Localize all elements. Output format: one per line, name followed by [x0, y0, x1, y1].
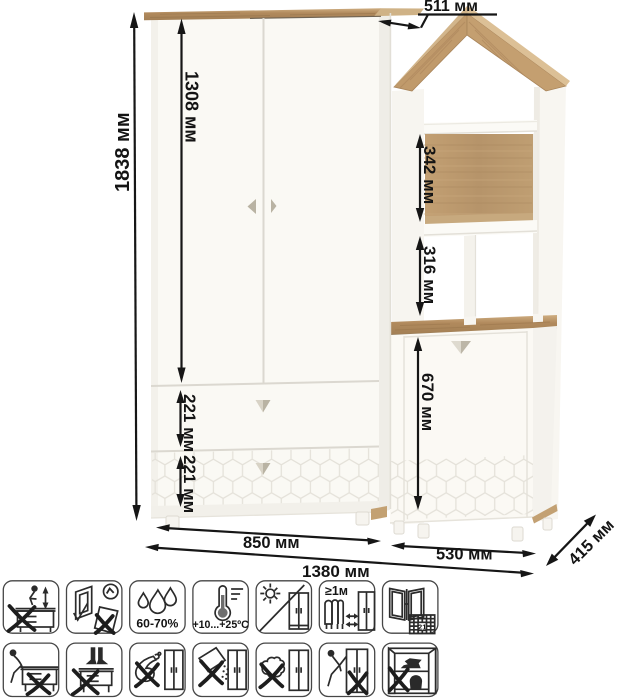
svg-text:221 мм: 221 мм [180, 455, 199, 513]
svg-text:530 мм: 530 мм [436, 546, 493, 564]
svg-text:850 мм: 850 мм [243, 534, 300, 552]
svg-text:21: 21 [418, 623, 426, 632]
svg-text:221 мм: 221 мм [180, 394, 199, 452]
svg-text:316 мм: 316 мм [420, 246, 439, 304]
svg-text:342 мм: 342 мм [420, 146, 439, 204]
svg-text:60-70%: 60-70% [136, 617, 178, 631]
svg-text:1838 мм: 1838 мм [112, 112, 134, 192]
svg-text:670 мм: 670 мм [418, 373, 437, 431]
svg-text:≥1м: ≥1м [325, 584, 348, 598]
svg-text:511 мм: 511 мм [424, 0, 478, 15]
svg-text:1380 мм: 1380 мм [302, 562, 370, 581]
svg-text:1308 мм: 1308 мм [182, 71, 202, 143]
svg-text:+10...+25ºС: +10...+25ºС [192, 619, 249, 631]
